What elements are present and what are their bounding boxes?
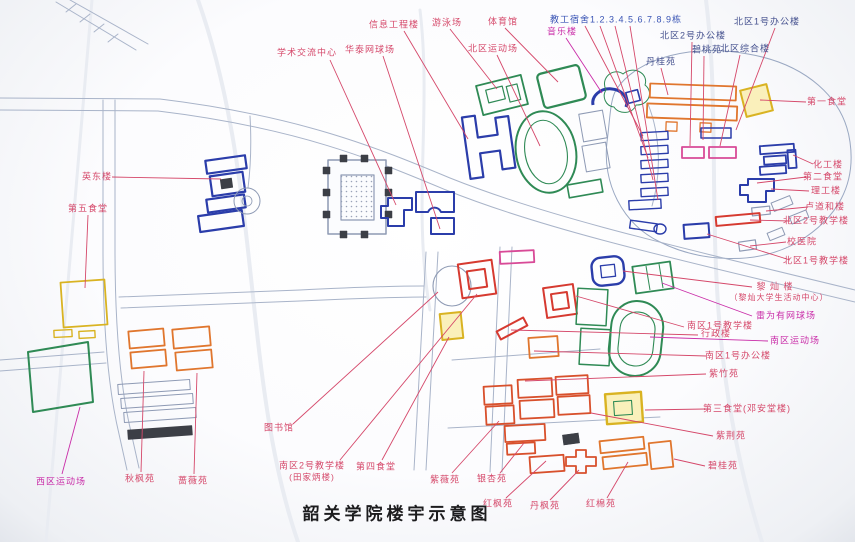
building-ligong-lou [740, 179, 774, 202]
building-beiqu-track-inner [520, 117, 572, 187]
road-main-1 [0, 98, 855, 290]
road-main-2 [0, 110, 855, 302]
building-ne-gray-c [767, 227, 785, 240]
map-title: 韶关学院楼宇示意图 [303, 500, 492, 525]
leader-line [690, 42, 692, 146]
building-south-pink-comb [500, 250, 535, 264]
leader-line [674, 459, 705, 466]
building-danfeng-yuan-bldg [566, 450, 596, 473]
road-nw-diag-2 [70, 0, 148, 44]
building-north-dorm-sq-1 [666, 122, 677, 131]
leader-line [452, 421, 499, 473]
leader-line [293, 292, 438, 424]
road-south-1 [452, 349, 600, 360]
building-leiweiyou-lines [646, 264, 663, 290]
road-v1-a [414, 252, 426, 470]
leader-line [534, 351, 706, 356]
building-yinyue-lou [593, 89, 627, 107]
building-quad-block-4 [385, 167, 392, 174]
building-yingdong-core [220, 178, 232, 188]
building-yingdong-lou-d [198, 210, 244, 232]
building-quad-block-10 [361, 231, 368, 238]
building-beiqu-court-a [579, 110, 607, 142]
campus-map-page: 学术交流中心华泰网球场信息工程楼游泳场体育馆北区运动场音乐楼教工宿舍1.2.3.… [0, 0, 855, 542]
building-beiqu-1-jiaoxuelou [684, 223, 710, 239]
building-quad-block-3 [323, 211, 330, 218]
building-nanqu-court-b [579, 328, 611, 366]
road-roundabout-link [248, 116, 251, 188]
leader-line [550, 470, 579, 500]
building-hongmian-yuan-a [599, 437, 644, 454]
building-ziwei-yuan-b [486, 405, 515, 424]
building-west-gray-row-2 [121, 394, 194, 409]
leader-line [112, 177, 221, 179]
leader-line [771, 189, 809, 191]
leader-line [85, 215, 88, 288]
leader-line [750, 220, 790, 221]
building-huagong-lou-a [760, 144, 794, 154]
building-bigui-yuan-bldg [649, 441, 674, 469]
building-quad-block-1 [323, 167, 330, 174]
building-lican-inner [600, 264, 615, 277]
building-jiaogong-sushe-row-6 [629, 199, 661, 210]
road-mid-1 [119, 286, 424, 297]
building-nanqu-2-jiaoxuelou [458, 260, 496, 298]
leader-line [661, 68, 668, 95]
building-zizhu-yuan-b [520, 399, 555, 419]
building-yinyue-annex [626, 90, 640, 104]
building-nanqu-1-jiaoxuelou [543, 284, 577, 318]
building-beiqu-court-green [567, 179, 603, 198]
leader-line [623, 271, 752, 287]
leader-line [194, 373, 197, 474]
road-west-2 [115, 100, 139, 468]
building-qiangwei-yuan-b [175, 349, 212, 370]
building-hongfeng-yuan-bldg [529, 455, 564, 473]
building-leiweiyou-court [632, 261, 673, 293]
building-youyong-pool-b [506, 84, 521, 102]
building-xingzheng-lou [497, 317, 528, 339]
leader-line [506, 461, 546, 498]
building-zijing-yuan-b [558, 395, 591, 415]
building-quad-block-8 [361, 155, 368, 162]
building-zijing-yuan-a [556, 375, 589, 395]
building-library-oval [433, 266, 471, 306]
building-tiyuguan [536, 64, 586, 108]
building-lican-lou [591, 255, 626, 286]
leader-line [645, 409, 705, 410]
building-jiaogong-round [654, 224, 666, 234]
building-qiufeng-yuan-b [130, 350, 166, 369]
building-yinxing-yuan-b [507, 442, 536, 454]
building-qiangwei-yuan-a [172, 326, 211, 348]
building-quad-block-2 [323, 189, 330, 196]
building-nanqu-1-bangonglou [528, 336, 558, 358]
building-west-gray-row-3 [124, 408, 197, 423]
buildings-layer [28, 64, 809, 473]
leader-line [500, 443, 524, 473]
building-xueshu-complex-c [431, 218, 454, 234]
building-jiaogong-sushe-row-1 [641, 131, 668, 140]
building-roundabout-outer [234, 188, 260, 214]
building-nanqu-track-inner [616, 310, 656, 367]
building-south-dark-bldg [562, 433, 579, 445]
leader-line [450, 29, 497, 89]
building-yinxing-yuan-a [505, 424, 546, 442]
building-ziwei-yuan-a [484, 385, 513, 404]
building-qiufeng-yuan-a [128, 329, 164, 349]
building-north-dorm-row-2 [647, 103, 737, 120]
leader-line [650, 337, 768, 341]
leader-line [505, 28, 558, 82]
roads-layer [0, 0, 855, 542]
building-beiqu-2-jiaoxuelou [716, 213, 761, 226]
map-canvas [0, 0, 855, 542]
building-quad-block-7 [340, 155, 347, 162]
road-v2-b [502, 247, 512, 472]
crease-2 [198, 0, 298, 542]
leader-line [576, 296, 684, 327]
building-zizhu-yuan-a [518, 378, 553, 398]
road-nw-diag-1 [56, 2, 136, 50]
leader-line [511, 330, 698, 335]
building-yingdong-lou-a [205, 155, 246, 173]
building-north-dorm-row-1 [650, 84, 736, 101]
building-nanqu-court-a [576, 288, 608, 326]
leader-line [662, 283, 752, 316]
building-quad-block-9 [340, 231, 347, 238]
building-beiqu-blue-comb [701, 128, 731, 138]
crease-1 [46, 0, 92, 542]
building-disi-shitang [440, 312, 464, 340]
building-ne-gray-b [789, 210, 809, 224]
building-huagong-lou-d [760, 165, 786, 175]
building-central-quad-inner [341, 175, 374, 220]
building-huagong-lou-b [764, 155, 787, 165]
building-west-dark-row [128, 426, 192, 439]
road-mid-2 [121, 297, 426, 308]
leader-line [62, 407, 80, 474]
leader-line [766, 207, 808, 211]
building-jiaogong-bar [630, 220, 658, 232]
leader-line [404, 31, 468, 139]
building-xinxi-gongcheng-lou [462, 111, 516, 179]
building-quad-block-6 [385, 211, 392, 218]
building-west-gray-row-1 [118, 380, 191, 395]
building-beiqu-office-pink-1 [682, 147, 704, 158]
building-west-yellow-b [79, 331, 95, 339]
building-jiaogong-sushe-row-3 [641, 159, 668, 168]
building-youyong-pool-a [486, 86, 506, 103]
